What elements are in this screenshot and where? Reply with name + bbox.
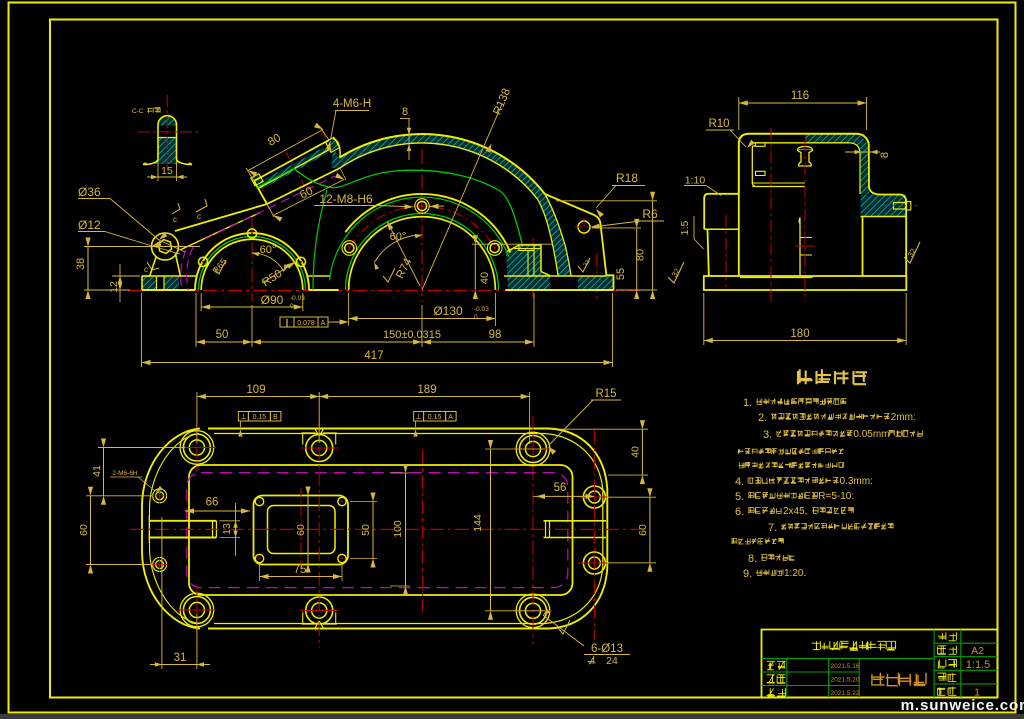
svg-text:40: 40 [479, 272, 491, 284]
svg-text:B: B [273, 414, 278, 421]
svg-text:1:20.: 1:20. [784, 568, 806, 579]
svg-text:Ø12: Ø12 [78, 218, 101, 232]
svg-text:A: A [448, 414, 453, 421]
svg-text:c: c [197, 212, 201, 221]
svg-text:m.sunweice.com: m.sunweice.com [901, 697, 1024, 714]
svg-text:189: 189 [417, 384, 436, 396]
svg-text:144: 144 [472, 514, 484, 532]
svg-text:6.: 6. [735, 506, 744, 518]
svg-text:R10: R10 [708, 118, 729, 130]
svg-text:40: 40 [630, 446, 642, 458]
svg-text:0.078: 0.078 [297, 320, 315, 327]
svg-text:100: 100 [392, 520, 404, 538]
svg-text:2021.5.16: 2021.5.16 [831, 663, 860, 670]
svg-text:55: 55 [615, 268, 627, 280]
svg-text:Ø90: Ø90 [261, 293, 284, 307]
svg-text:R18: R18 [616, 171, 638, 185]
svg-text:75: 75 [294, 564, 307, 576]
svg-text:8: 8 [879, 152, 891, 158]
svg-text:7.: 7. [768, 522, 777, 534]
svg-text:A2: A2 [971, 645, 984, 657]
svg-text:-0.03: -0.03 [474, 306, 489, 313]
svg-text:R15: R15 [595, 388, 616, 400]
svg-text:60°: 60° [260, 244, 277, 256]
svg-text:∥: ∥ [285, 318, 289, 327]
svg-text:Ø36: Ø36 [78, 185, 101, 199]
svg-text:50: 50 [216, 329, 229, 341]
svg-text:2-M6-6H: 2-M6-6H [112, 470, 138, 477]
svg-text:417: 417 [364, 350, 383, 362]
svg-text:60: 60 [637, 524, 649, 536]
svg-text:Ø130: Ø130 [433, 304, 463, 318]
svg-text:c: c [144, 265, 148, 274]
svg-text:2.: 2. [758, 412, 767, 424]
svg-text:3.: 3. [763, 429, 772, 441]
svg-text:A: A [321, 320, 326, 327]
svg-text:0.15: 0.15 [428, 414, 442, 421]
svg-text:98: 98 [489, 329, 502, 341]
svg-text:4-M6-H: 4-M6-H [333, 98, 371, 110]
svg-text:150±0.0315: 150±0.0315 [383, 329, 441, 341]
svg-text:R=5-10:: R=5-10: [818, 491, 854, 502]
svg-text:-0.03: -0.03 [290, 295, 305, 302]
svg-text:180: 180 [790, 328, 809, 340]
svg-text:60: 60 [295, 524, 307, 536]
svg-text:66: 66 [206, 497, 219, 509]
svg-text:13: 13 [221, 523, 233, 535]
svg-text:5.: 5. [735, 491, 744, 503]
svg-text:80: 80 [635, 249, 647, 261]
svg-text:0.3mm:: 0.3mm: [840, 476, 873, 487]
svg-text:12-M8-H6: 12-M8-H6 [319, 192, 373, 206]
svg-text:4.: 4. [735, 476, 744, 488]
svg-text:2x45,: 2x45, [783, 506, 807, 517]
svg-text:9.: 9. [743, 568, 752, 580]
svg-text:2021.5.22: 2021.5.22 [831, 690, 860, 697]
svg-text:41: 41 [91, 465, 103, 477]
svg-text:1:5: 1:5 [679, 221, 691, 236]
svg-text:C-C: C-C [132, 108, 144, 115]
svg-text:0.15: 0.15 [253, 414, 267, 421]
svg-text:116: 116 [791, 90, 809, 102]
svg-text:⊥: ⊥ [240, 412, 247, 421]
svg-text:0: 0 [474, 314, 478, 321]
svg-text:8: 8 [402, 106, 408, 118]
svg-text:60°: 60° [390, 231, 407, 243]
svg-text:0: 0 [290, 303, 294, 310]
svg-text:24: 24 [606, 655, 618, 667]
svg-text:1:1.5: 1:1.5 [966, 659, 990, 671]
svg-text:60: 60 [78, 524, 90, 536]
svg-text:2021.5.20: 2021.5.20 [831, 677, 860, 684]
svg-text:c: c [173, 215, 177, 224]
svg-text:56: 56 [554, 482, 567, 494]
svg-text:R6: R6 [642, 207, 658, 221]
svg-text:12: 12 [108, 281, 120, 293]
svg-text:1.: 1. [743, 397, 752, 409]
svg-text:31: 31 [174, 652, 187, 664]
svg-text:0.05mm: 0.05mm [853, 429, 889, 440]
svg-text:15: 15 [161, 165, 173, 177]
svg-text:2mm:: 2mm: [891, 412, 916, 423]
svg-text:1:10: 1:10 [685, 175, 706, 187]
svg-text:6-Ø13: 6-Ø13 [591, 643, 623, 655]
svg-text:38: 38 [75, 258, 87, 270]
svg-text:⊥: ⊥ [415, 412, 422, 421]
svg-text:109: 109 [246, 384, 265, 396]
svg-text:8.: 8. [748, 553, 757, 565]
svg-text:50: 50 [360, 524, 372, 536]
